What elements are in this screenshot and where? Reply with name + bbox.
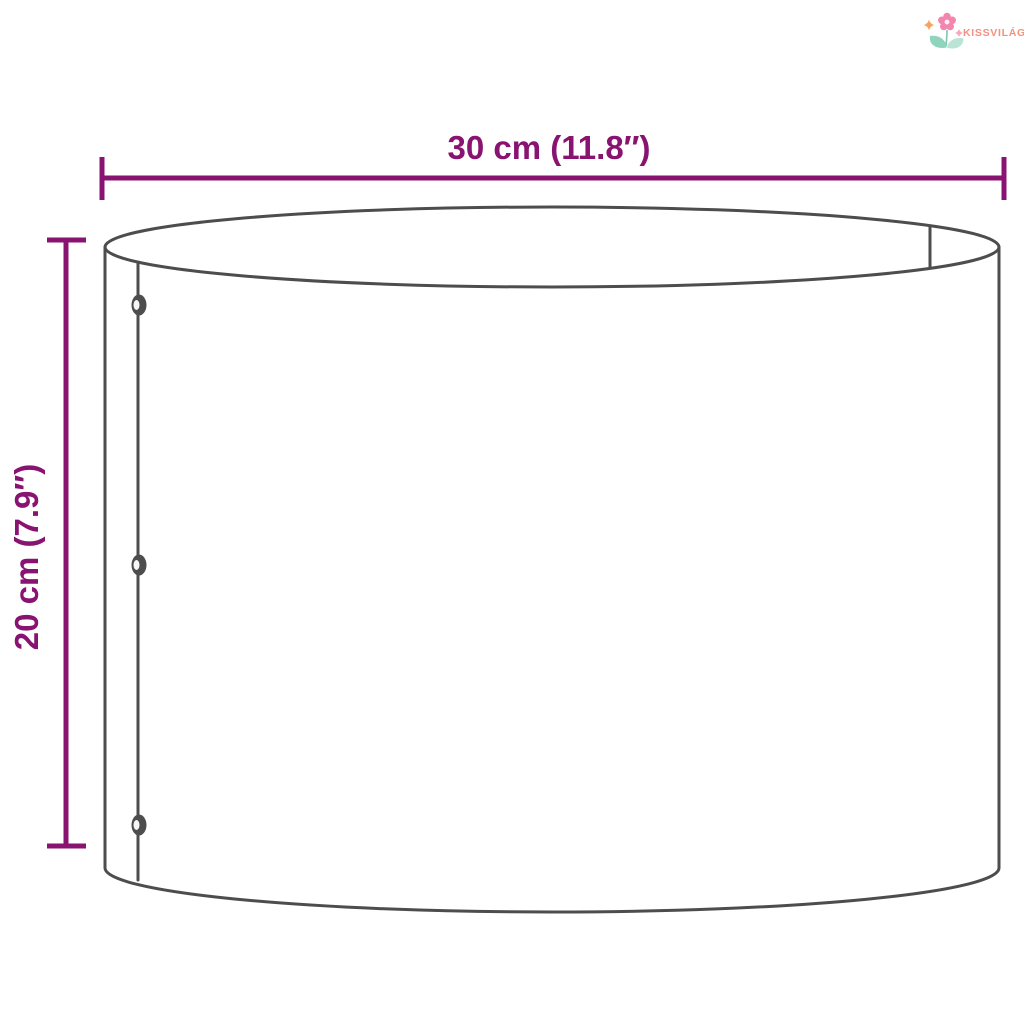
width-dimension-label: 30 cm (11.8″): [448, 129, 651, 166]
rivet-hole: [134, 300, 140, 310]
brand-logo: KISSVILÁG: [924, 13, 1024, 49]
rivet-hole: [134, 820, 140, 830]
planter-drawing: [105, 207, 999, 912]
width-dimension: 30 cm (11.8″): [102, 129, 1004, 200]
rivet: [132, 815, 147, 836]
height-dimension: 20 cm (7.9″): [8, 240, 86, 846]
planter-top-rim: [105, 207, 999, 287]
rivet: [132, 295, 147, 316]
rivet-hole: [134, 560, 140, 570]
rivet: [132, 555, 147, 576]
flower-logo-icon: [924, 13, 964, 49]
planter-body: [105, 247, 999, 912]
height-dimension-label: 20 cm (7.9″): [8, 464, 45, 650]
dimension-diagram: 30 cm (11.8″) 20 cm (7.9″): [0, 0, 1024, 1024]
brand-name: KISSVILÁG: [963, 26, 1024, 39]
product-dimension-image: 30 cm (11.8″) 20 cm (7.9″): [0, 0, 1024, 1024]
